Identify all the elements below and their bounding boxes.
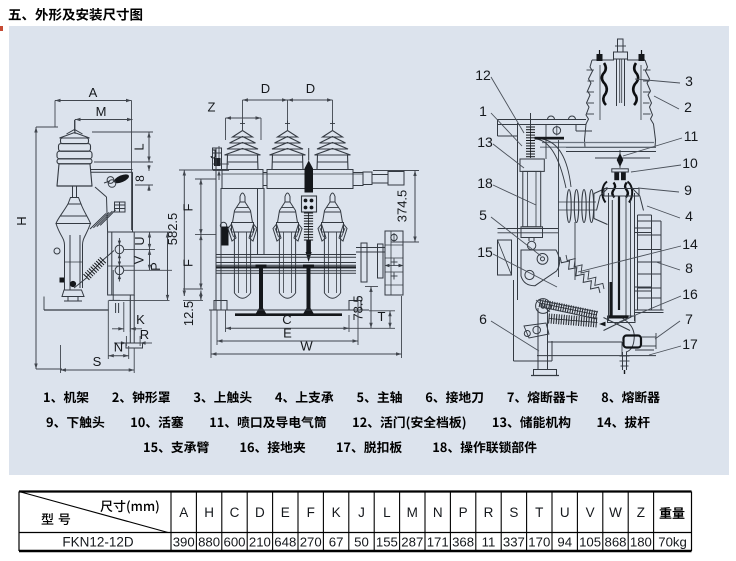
svg-text:T: T — [535, 505, 543, 520]
svg-text:F: F — [181, 259, 196, 267]
svg-text:8: 8 — [133, 175, 147, 182]
svg-text:U: U — [133, 236, 147, 245]
svg-text:94: 94 — [557, 535, 572, 550]
svg-text:7: 7 — [685, 311, 693, 327]
svg-text:868: 868 — [604, 535, 626, 550]
svg-text:D: D — [261, 81, 270, 96]
svg-text:374.5: 374.5 — [395, 190, 410, 223]
svg-text:12.5: 12.5 — [181, 301, 196, 326]
svg-text:8: 8 — [685, 260, 693, 276]
svg-text:N: N — [114, 340, 123, 355]
svg-text:16: 16 — [682, 286, 698, 302]
svg-text:210: 210 — [249, 535, 271, 550]
svg-text:L: L — [132, 143, 147, 150]
svg-text:FKN12-12D: FKN12-12D — [62, 535, 134, 550]
svg-text:D: D — [306, 81, 315, 96]
svg-text:H: H — [14, 216, 29, 225]
svg-text:D: D — [255, 505, 265, 520]
svg-text:600: 600 — [223, 535, 245, 550]
svg-text:368: 368 — [452, 535, 474, 550]
svg-text:648: 648 — [274, 535, 296, 550]
svg-text:5: 5 — [479, 207, 487, 223]
svg-text:171: 171 — [427, 535, 449, 550]
svg-text:18: 18 — [477, 175, 493, 191]
svg-text:F: F — [307, 505, 315, 520]
svg-text:R: R — [484, 505, 494, 520]
svg-text:170: 170 — [528, 535, 550, 550]
svg-text:Z: Z — [637, 505, 645, 520]
svg-text:2: 2 — [684, 99, 692, 115]
svg-text:Z: Z — [208, 100, 216, 115]
svg-text:C: C — [230, 505, 240, 520]
svg-text:U: U — [560, 505, 570, 520]
svg-text:12: 12 — [475, 67, 491, 83]
svg-text:M: M — [407, 505, 418, 520]
svg-text:E: E — [281, 505, 290, 520]
svg-text:14: 14 — [682, 236, 698, 252]
svg-text:1: 1 — [479, 103, 487, 119]
svg-text:V: V — [133, 255, 147, 264]
svg-text:F: F — [181, 203, 196, 211]
svg-text:S: S — [93, 354, 102, 369]
svg-text:A: A — [179, 505, 188, 520]
svg-text:6: 6 — [479, 311, 487, 327]
svg-text:A: A — [89, 85, 98, 100]
svg-text:9: 9 — [684, 182, 692, 198]
svg-text:11: 11 — [482, 535, 496, 550]
svg-text:67: 67 — [329, 535, 344, 550]
svg-text:R: R — [140, 327, 149, 342]
svg-text:W: W — [609, 505, 622, 520]
svg-text:70kg: 70kg — [658, 535, 687, 550]
svg-text:390: 390 — [173, 535, 195, 550]
svg-text:11: 11 — [684, 128, 699, 144]
svg-text:287: 287 — [401, 535, 423, 550]
svg-text:N: N — [433, 505, 443, 520]
svg-text:P: P — [459, 505, 468, 520]
svg-text:S: S — [509, 505, 518, 520]
svg-text:337: 337 — [503, 535, 525, 550]
svg-text:10: 10 — [682, 155, 698, 171]
svg-text:L: L — [383, 505, 391, 520]
svg-text:V: V — [586, 505, 595, 520]
svg-text:H: H — [204, 505, 214, 520]
svg-text:270: 270 — [300, 535, 322, 550]
svg-text:50: 50 — [354, 535, 369, 550]
svg-text:880: 880 — [198, 535, 220, 550]
svg-text:13: 13 — [477, 134, 493, 150]
svg-text:M: M — [96, 104, 107, 119]
svg-text:155: 155 — [376, 535, 398, 550]
svg-text:K: K — [332, 505, 341, 520]
svg-text:P: P — [148, 262, 163, 271]
svg-text:17: 17 — [682, 336, 698, 352]
svg-text:3: 3 — [685, 73, 693, 89]
svg-text:4: 4 — [685, 208, 693, 224]
svg-text:J: J — [358, 505, 365, 520]
svg-text:W: W — [300, 339, 313, 354]
svg-text:105: 105 — [579, 535, 601, 550]
svg-text:582.5: 582.5 — [165, 213, 180, 246]
svg-text:180: 180 — [630, 535, 652, 550]
svg-text:T: T — [378, 309, 386, 324]
svg-text:K: K — [136, 312, 145, 327]
svg-text:15: 15 — [477, 244, 493, 260]
svg-text:E: E — [283, 326, 292, 341]
